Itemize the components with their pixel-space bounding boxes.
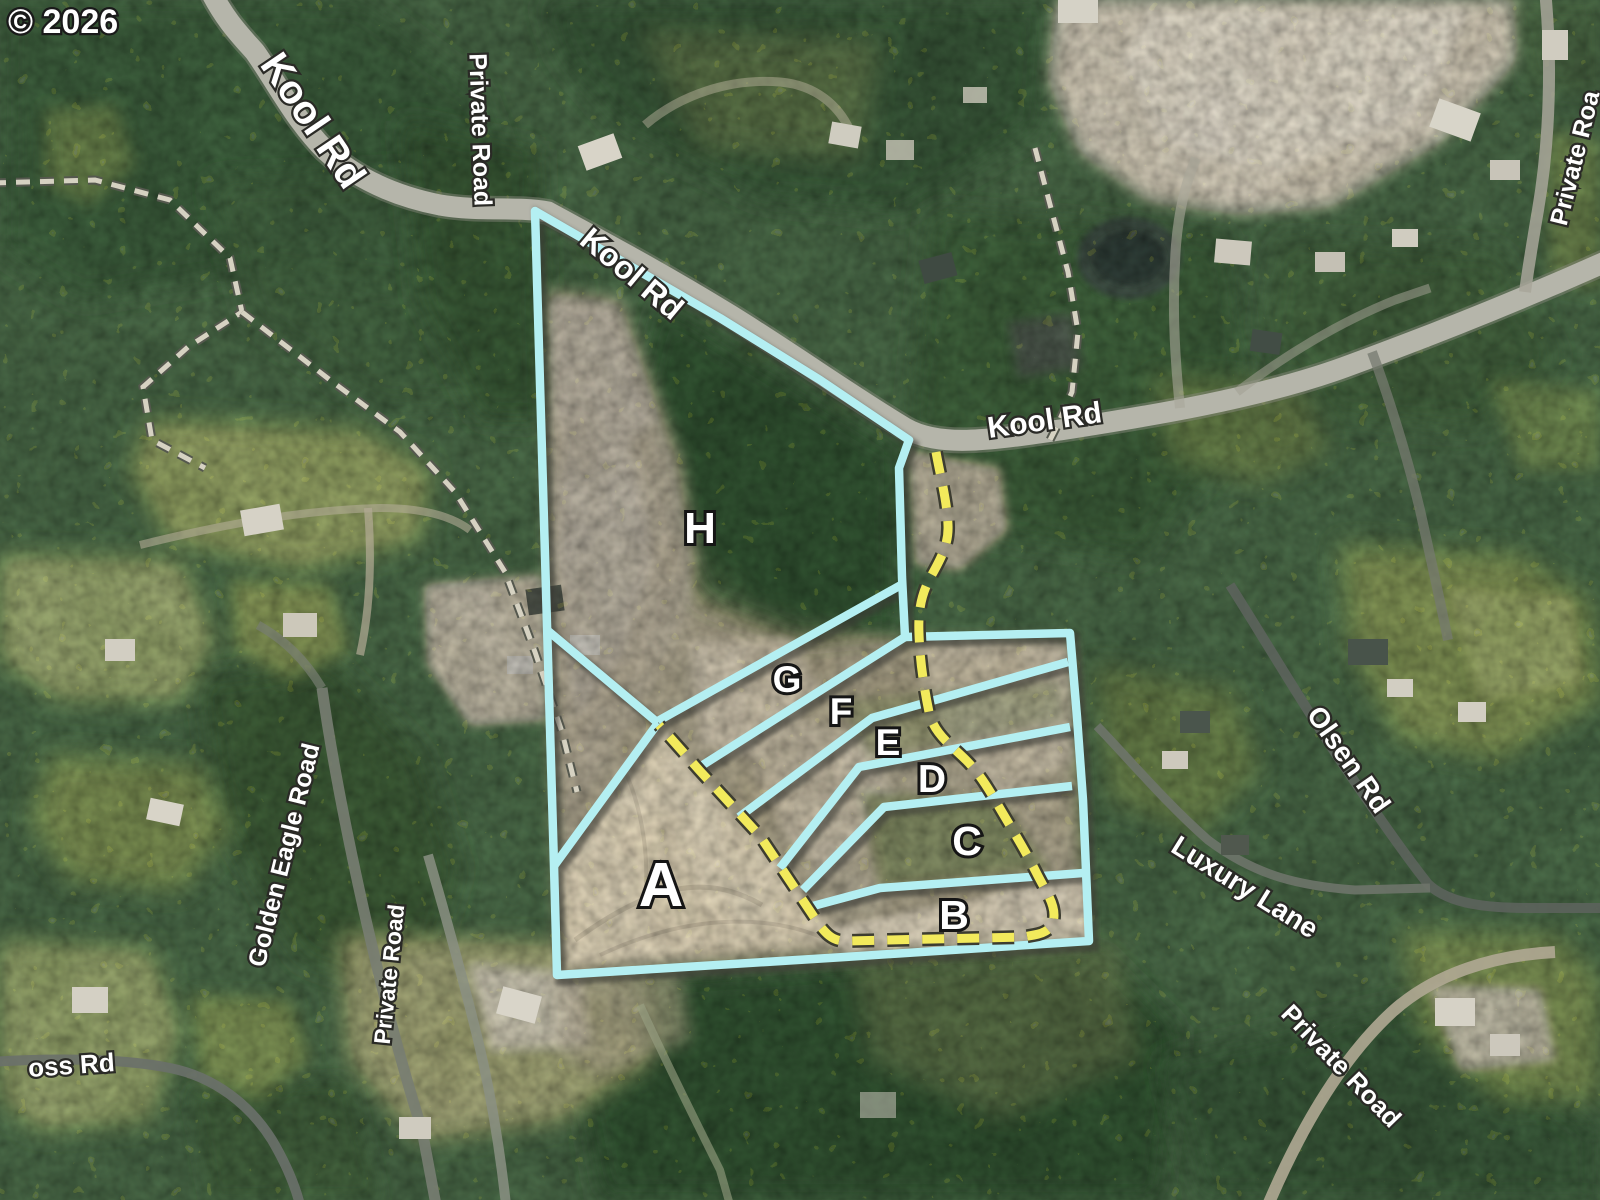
- svg-text:Private Road: Private Road: [463, 53, 496, 207]
- svg-text:© 2026: © 2026: [8, 3, 118, 41]
- svg-text:H: H: [684, 504, 716, 553]
- svg-text:G: G: [773, 659, 802, 700]
- svg-text:E: E: [876, 722, 901, 763]
- svg-text:F: F: [830, 691, 853, 732]
- svg-text:A: A: [639, 851, 684, 920]
- svg-text:oss Rd: oss Rd: [27, 1047, 116, 1083]
- svg-text:C: C: [952, 818, 982, 864]
- svg-text:D: D: [918, 758, 946, 801]
- svg-text:B: B: [939, 892, 969, 938]
